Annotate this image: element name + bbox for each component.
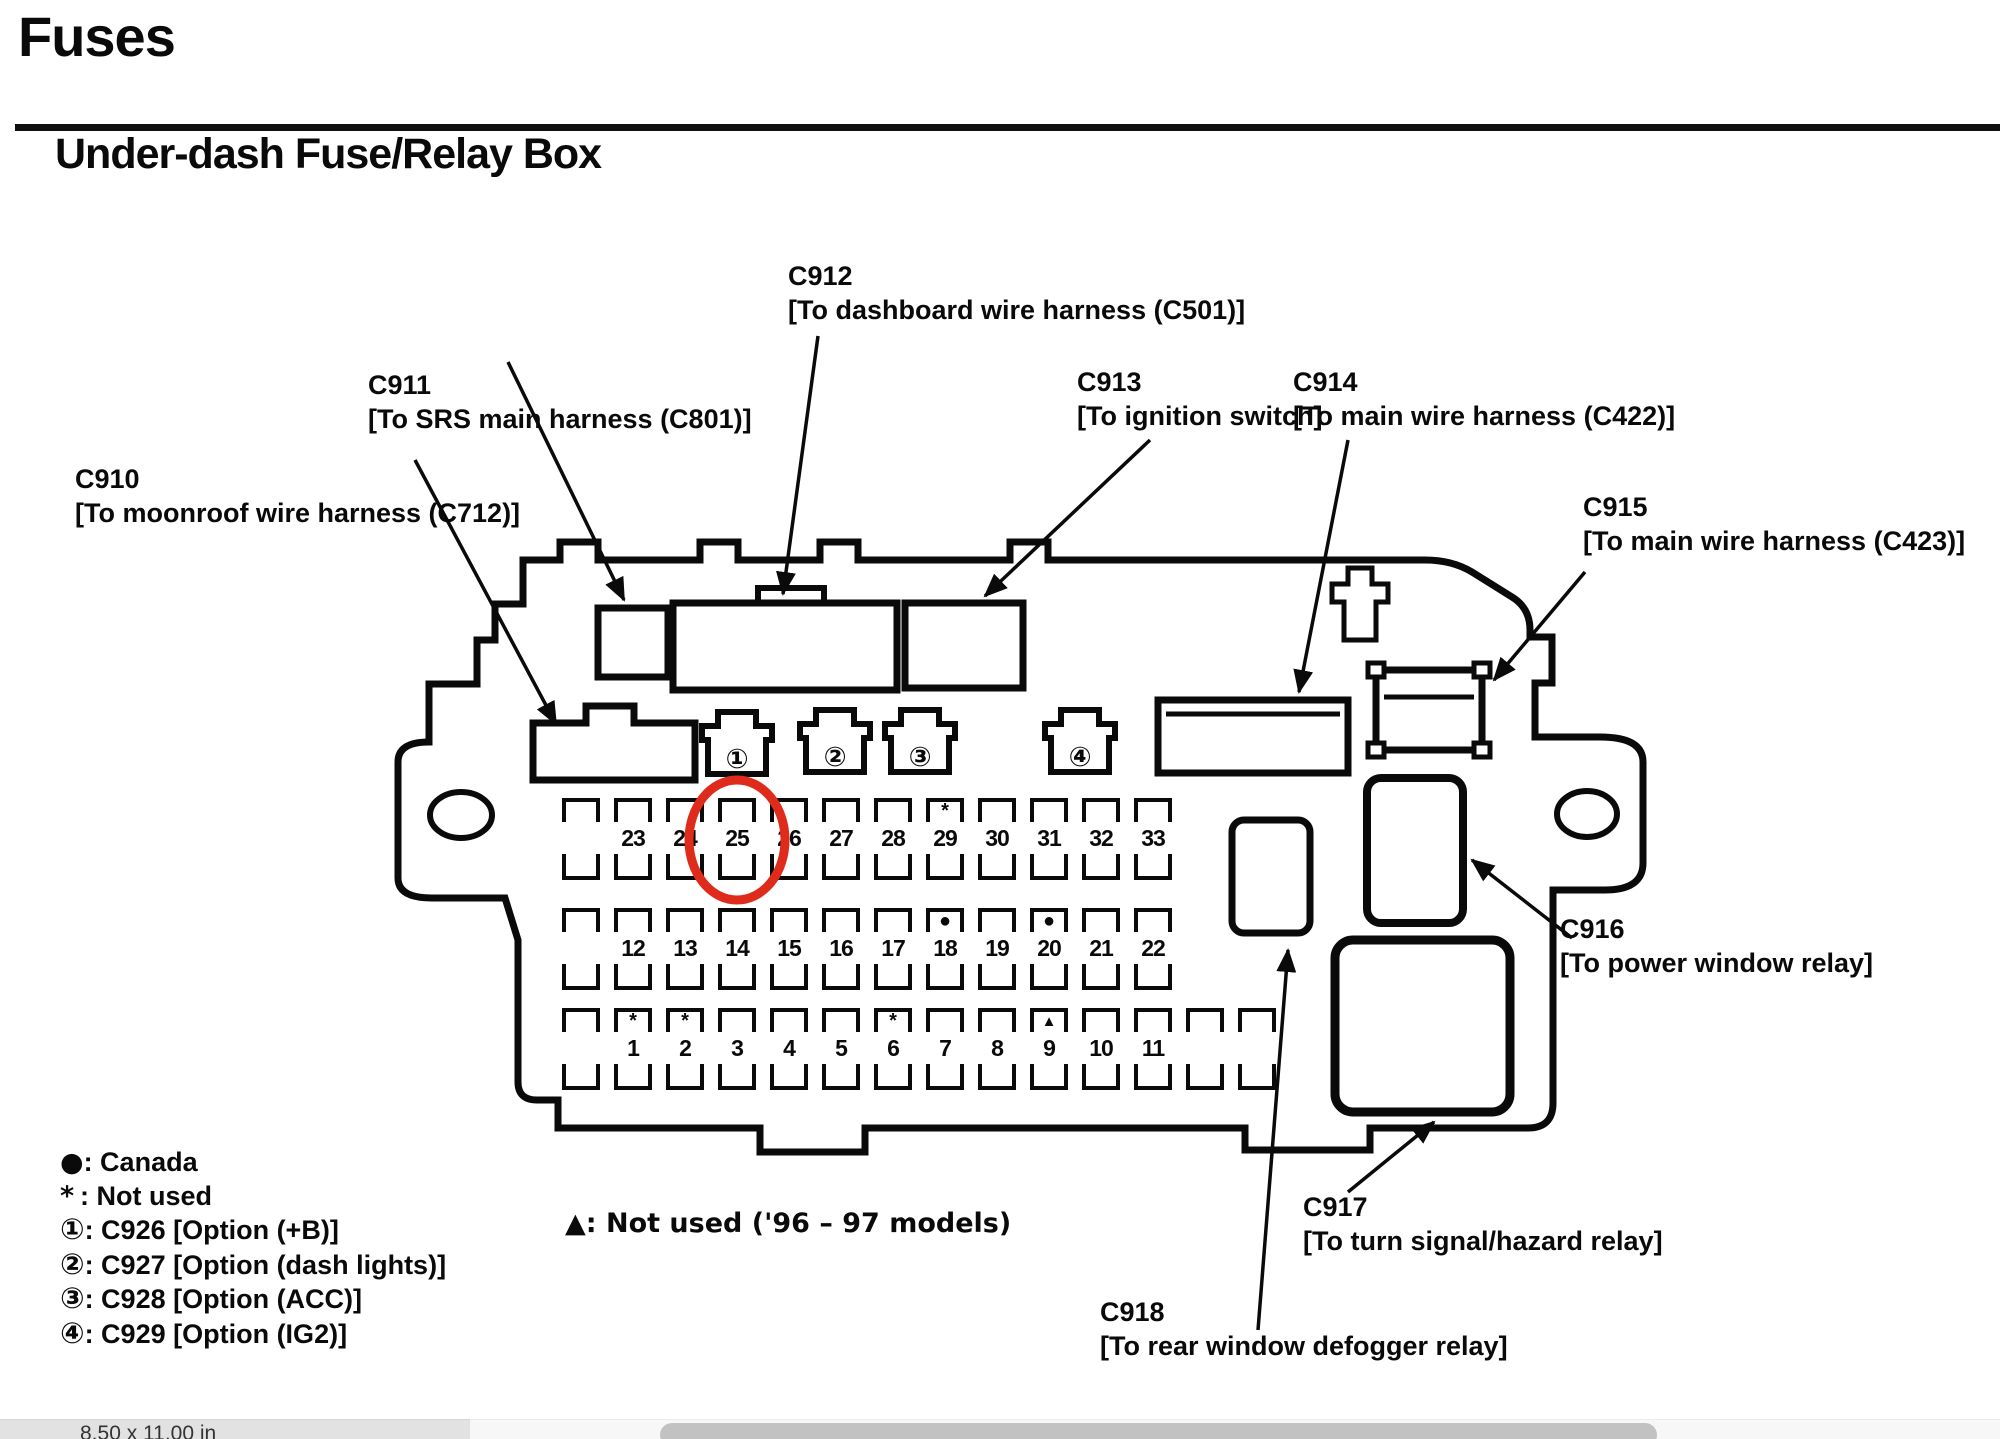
fuse-slot-top [562, 1008, 600, 1032]
connector-label-c915: C915 [To main wire harness (C423)] [1583, 490, 1965, 558]
leader-line-c914 [1299, 440, 1348, 692]
fuse-cell: 22 [1134, 908, 1172, 990]
relay-c918-target [1232, 820, 1310, 933]
fuse-slot-bottom [614, 1064, 652, 1090]
fuse-cell: 10 [1082, 1008, 1120, 1090]
fuse-number: 16 [822, 932, 860, 964]
fuse-slot-top [1082, 798, 1120, 822]
fuse-cell: ▲9 [1030, 1008, 1068, 1090]
fuse-cell: 25 [718, 798, 756, 880]
fuse-cell: 4 [770, 1008, 808, 1090]
connector-desc: [To SRS main harness (C801)] [368, 404, 752, 434]
fuse-slot-top [1082, 908, 1120, 932]
fuse-marker: * [670, 1012, 700, 1031]
fuse-slot-top [614, 908, 652, 932]
fuse-number: 6 [874, 1032, 912, 1064]
connector-label-c918: C918 [To rear window defogger relay] [1100, 1295, 1508, 1363]
fuse-slot-bottom [666, 854, 704, 880]
fuse-slot-bottom [666, 964, 704, 990]
connector-id: C914 [1293, 365, 1675, 399]
legend-item: *: Not used [60, 1180, 446, 1214]
connector-label-c916: C916 [To power window relay] [1560, 912, 1873, 980]
fuse-number: 27 [822, 822, 860, 854]
fuse-number: 17 [874, 932, 912, 964]
legend-item: ①: C926 [Option (+B)] [60, 1213, 446, 1248]
connector-c915 [1376, 670, 1482, 750]
fuse-number [1186, 1032, 1224, 1064]
fuse-marker: ▲ [1034, 1012, 1064, 1031]
fuse-row-middle: 121314151617●1819●202122 [562, 908, 1172, 990]
fuse-slot-bottom [614, 854, 652, 880]
connector-c914 [1158, 700, 1348, 773]
legend-symbol: ② [60, 1248, 85, 1282]
legend-symbol: ④ [60, 1317, 85, 1351]
manual-page: Fuses Under-dash Fuse/Relay Box ① ② ③ [0, 0, 2000, 1439]
fuse-slot-bottom [1030, 1064, 1068, 1090]
fuse-number: 13 [666, 932, 704, 964]
fuse-number [1238, 1032, 1276, 1064]
leader-line-c917 [1348, 1122, 1434, 1192]
plug-number-2: ② [824, 742, 847, 773]
fuse-cell: *6 [874, 1008, 912, 1090]
fuse-cell [562, 1008, 600, 1090]
mounting-hole-right [1557, 791, 1617, 837]
fuse-slot-bottom [1082, 854, 1120, 880]
fuse-number: 11 [1134, 1032, 1172, 1064]
fuse-cell: 14 [718, 908, 756, 990]
fuse-slot-top: ▲ [1030, 1008, 1068, 1032]
legend-item: ④: C929 [Option (IG2)] [60, 1317, 446, 1352]
fuse-slot-top [822, 798, 860, 822]
connector-id: C916 [1560, 912, 1873, 946]
connector-desc: [To turn signal/hazard relay] [1303, 1226, 1663, 1256]
fuse-number: 7 [926, 1032, 964, 1064]
fuse-slot-top: * [926, 798, 964, 822]
fuse-number: 15 [770, 932, 808, 964]
fuse-cell: 32 [1082, 798, 1120, 880]
fuse-slot-top: * [874, 1008, 912, 1032]
fuse-number: 10 [1082, 1032, 1120, 1064]
legend-text: : C926 [Option (+B)] [85, 1214, 339, 1248]
fuse-slot-top: * [614, 1008, 652, 1032]
fuse-slot-bottom [614, 964, 652, 990]
connector-desc: [To dashboard wire harness (C501)] [788, 295, 1245, 325]
fuse-slot-top [614, 798, 652, 822]
fuse-cell: 23 [614, 798, 652, 880]
fuse-slot-top: ● [926, 908, 964, 932]
fuse-number: 19 [978, 932, 1016, 964]
fuse-number: 26 [770, 822, 808, 854]
fuse-cell: 8 [978, 1008, 1016, 1090]
fuse-cell: 26 [770, 798, 808, 880]
legend-item: ●: Canada [60, 1146, 446, 1180]
fuse-cell: 28 [874, 798, 912, 880]
plug-number-4: ④ [1069, 742, 1092, 773]
connector-id: C911 [368, 368, 752, 402]
fuse-slot-bottom [1030, 854, 1068, 880]
connector-desc: [To main wire harness (C422)] [1293, 401, 1675, 431]
fuse-number: 29 [926, 822, 964, 854]
fuse-slot-top [1134, 798, 1172, 822]
fuse-slot-top [1082, 1008, 1120, 1032]
fuse-marker: ● [930, 912, 960, 931]
fuse-slot-top [770, 1008, 808, 1032]
fuse-slot-top [1134, 908, 1172, 932]
fuse-cell: 33 [1134, 798, 1172, 880]
fuse-slot-bottom [822, 854, 860, 880]
fuse-slot-bottom [978, 1064, 1016, 1090]
fuse-marker: * [618, 1012, 648, 1031]
legend-text: : C928 [Option (ACC)] [85, 1283, 362, 1317]
mounting-hole-left [430, 792, 492, 838]
connector-id: C915 [1583, 490, 1965, 524]
connector-c911 [598, 608, 668, 677]
fuse-slot-bottom [1030, 964, 1068, 990]
fuse-cell: 15 [770, 908, 808, 990]
fuse-number: 21 [1082, 932, 1120, 964]
connector-label-c912: C912 [To dashboard wire harness (C501)] [788, 259, 1245, 327]
leader-line-c912 [783, 336, 818, 594]
fuse-slot-bottom [718, 964, 756, 990]
fuse-slot-top [562, 798, 600, 822]
fuse-cell: 24 [666, 798, 704, 880]
legend-text: : Not used [80, 1180, 212, 1214]
fuse-row-top: 232425262728*2930313233 [562, 798, 1172, 880]
fuse-slot-top [978, 1008, 1016, 1032]
fuse-cell: 27 [822, 798, 860, 880]
connector-desc: [To rear window defogger relay] [1100, 1331, 1508, 1361]
scrollbar-thumb[interactable] [660, 1423, 1657, 1439]
fuse-slot-bottom [926, 964, 964, 990]
fuse-slot-bottom [562, 854, 600, 880]
connector-id: C912 [788, 259, 1245, 293]
fuse-slot-top [718, 1008, 756, 1032]
fuse-slot-bottom [874, 964, 912, 990]
fuse-slot-top [822, 908, 860, 932]
fuse-number [562, 932, 600, 964]
triangle-icon: ▲ [565, 1208, 586, 1239]
fuse-cell: *2 [666, 1008, 704, 1090]
fuse-slot-bottom [926, 854, 964, 880]
legend-item: ②: C927 [Option (dash lights)] [60, 1248, 446, 1283]
fuse-slot-top [718, 798, 756, 822]
fuse-number: 14 [718, 932, 756, 964]
triangle-note-text: Not used ('96 – 97 models) [606, 1208, 1011, 1239]
fuse-marker: * [930, 802, 960, 821]
fuse-number: 33 [1134, 822, 1172, 854]
connector-c912 [673, 603, 897, 690]
connector-id: C918 [1100, 1295, 1508, 1329]
leader-line-c916 [1472, 860, 1572, 938]
status-bar: 8.50 x 11.00 in [0, 1419, 2000, 1439]
triangle-note-separator: : [586, 1208, 606, 1239]
fuse-slot-top [926, 1008, 964, 1032]
legend-symbol: ● [60, 1146, 84, 1180]
fuse-cell: ●20 [1030, 908, 1068, 990]
page-size-label: 8.50 x 11.00 in [80, 1422, 216, 1439]
fuse-cell: 19 [978, 908, 1016, 990]
leader-line-c915 [1494, 572, 1585, 680]
status-bar-left: 8.50 x 11.00 in [0, 1419, 470, 1439]
fuse-slot-top [1186, 1008, 1224, 1032]
fuse-number: 22 [1134, 932, 1172, 964]
plug-number-3: ③ [909, 742, 932, 773]
fuse-number [562, 822, 600, 854]
fuse-slot-bottom [770, 854, 808, 880]
fuse-slot-top [770, 798, 808, 822]
connector-id: C910 [75, 462, 520, 496]
fuse-slot-bottom [1186, 1064, 1224, 1090]
connector-c914-group [1158, 700, 1348, 773]
connector-label-c917: C917 [To turn signal/hazard relay] [1303, 1190, 1663, 1258]
fuse-slot-bottom [1082, 1064, 1120, 1090]
legend-text: : C929 [Option (IG2)] [85, 1318, 348, 1352]
fuse-marker: ● [1034, 912, 1064, 931]
fuse-cell: 13 [666, 908, 704, 990]
fuse-slot-bottom [822, 1064, 860, 1090]
fuse-cell [1238, 1008, 1276, 1090]
fuse-slot-bottom [874, 854, 912, 880]
fuse-slot-bottom [1082, 964, 1120, 990]
fuse-slot-top [978, 908, 1016, 932]
fuse-slot-bottom [1134, 854, 1172, 880]
fuse-number: 30 [978, 822, 1016, 854]
fuse-cell: 16 [822, 908, 860, 990]
fuse-number: 28 [874, 822, 912, 854]
fuse-cell: *29 [926, 798, 964, 880]
fuse-cell [562, 798, 600, 880]
fuse-number: 1 [614, 1032, 652, 1064]
fuse-cell: 21 [1082, 908, 1120, 990]
fuse-slot-top [1238, 1008, 1276, 1032]
fuse-slot-top [666, 798, 704, 822]
connector-label-c913: C913 [To ignition switch] [1077, 365, 1322, 433]
fuse-row-bottom: *1*2345*678▲91011 [562, 1008, 1276, 1090]
fuse-number: 32 [1082, 822, 1120, 854]
plug-number-1: ① [726, 744, 749, 775]
connector-label-c911: C911 [To SRS main harness (C801)] [368, 368, 752, 436]
fuse-number [562, 1032, 600, 1064]
leader-line-c918 [1258, 950, 1288, 1330]
fuse-slot-bottom [1134, 1064, 1172, 1090]
fuse-slot-bottom [978, 964, 1016, 990]
fuse-slot-bottom [562, 964, 600, 990]
connector-id: C917 [1303, 1190, 1663, 1224]
fuse-number: 9 [1030, 1032, 1068, 1064]
fuse-slot-top [562, 908, 600, 932]
connector-c910 [533, 706, 695, 780]
legend-symbol: * [60, 1180, 80, 1214]
fuse-cell [1186, 1008, 1224, 1090]
fuse-slot-bottom [1134, 964, 1172, 990]
fuse-cell: *1 [614, 1008, 652, 1090]
fuse-slot-bottom [926, 1064, 964, 1090]
legend-text: : C927 [Option (dash lights)] [85, 1249, 447, 1283]
fuse-slot-bottom [770, 1064, 808, 1090]
legend-symbol: ① [60, 1213, 85, 1247]
relay-c916-target [1367, 778, 1463, 923]
fuse-marker: * [878, 1012, 908, 1031]
connector-id: C913 [1077, 365, 1322, 399]
fuse-cell: 12 [614, 908, 652, 990]
fuse-number: 31 [1030, 822, 1068, 854]
fuse-cell [562, 908, 600, 990]
fuse-number: 18 [926, 932, 964, 964]
fuse-slot-top [666, 908, 704, 932]
legend-symbol: ③ [60, 1282, 85, 1316]
fuse-slot-bottom [718, 1064, 756, 1090]
fuse-number: 5 [822, 1032, 860, 1064]
connector-desc: [To moonroof wire harness (C712)] [75, 498, 520, 528]
fuse-number: 12 [614, 932, 652, 964]
fuse-cell: 17 [874, 908, 912, 990]
leader-line-c913 [985, 440, 1150, 596]
fuse-slot-top [822, 1008, 860, 1032]
fuse-cell: 11 [1134, 1008, 1172, 1090]
fuse-slot-bottom [562, 1064, 600, 1090]
connector-label-c914: C914 [To main wire harness (C422)] [1293, 365, 1675, 433]
fuse-slot-bottom [978, 854, 1016, 880]
fuse-cell: ●18 [926, 908, 964, 990]
fuse-slot-top: ● [1030, 908, 1068, 932]
fuse-cell: 7 [926, 1008, 964, 1090]
fuse-slot-top [1030, 798, 1068, 822]
connector-label-c910: C910 [To moonroof wire harness (C712)] [75, 462, 520, 530]
fuse-slot-top [874, 908, 912, 932]
legend-item: ③: C928 [Option (ACC)] [60, 1282, 446, 1317]
fuse-number: 24 [666, 822, 704, 854]
fuse-number: 25 [718, 822, 756, 854]
fuse-cell: 5 [822, 1008, 860, 1090]
fuse-number: 4 [770, 1032, 808, 1064]
fuse-slot-top [978, 798, 1016, 822]
fuse-slot-top [718, 908, 756, 932]
connector-c913 [905, 603, 1023, 688]
fuse-slot-top [1134, 1008, 1172, 1032]
connector-top-right-small [1332, 568, 1388, 640]
fuse-number: 20 [1030, 932, 1068, 964]
legend-text: : Canada [84, 1146, 198, 1180]
fuse-number: 3 [718, 1032, 756, 1064]
fuse-slot-bottom [718, 854, 756, 880]
fuse-slot-top: * [666, 1008, 704, 1032]
connector-c915-group [1368, 663, 1490, 757]
connector-desc: [To ignition switch] [1077, 401, 1322, 431]
fuse-slot-bottom [770, 964, 808, 990]
fuse-slot-bottom [874, 1064, 912, 1090]
fuse-slot-top [770, 908, 808, 932]
connector-desc: [To main wire harness (C423)] [1583, 526, 1965, 556]
fuse-number: 2 [666, 1032, 704, 1064]
fuse-cell: 31 [1030, 798, 1068, 880]
fuse-number: 8 [978, 1032, 1016, 1064]
fuse-slot-bottom [666, 1064, 704, 1090]
fuse-number: 23 [614, 822, 652, 854]
fuse-cell: 30 [978, 798, 1016, 880]
fuse-slot-bottom [822, 964, 860, 990]
fuse-cell: 3 [718, 1008, 756, 1090]
triangle-note: ▲: Not used ('96 – 97 models) [565, 1208, 1011, 1239]
horizontal-scrollbar[interactable] [470, 1419, 2000, 1439]
relay-c917-target [1335, 940, 1510, 1112]
connector-desc: [To power window relay] [1560, 948, 1873, 978]
fuse-slot-bottom [1238, 1064, 1276, 1090]
fuse-slot-top [874, 798, 912, 822]
legend: ●: Canada*: Not used①: C926 [Option (+B)… [60, 1146, 446, 1351]
